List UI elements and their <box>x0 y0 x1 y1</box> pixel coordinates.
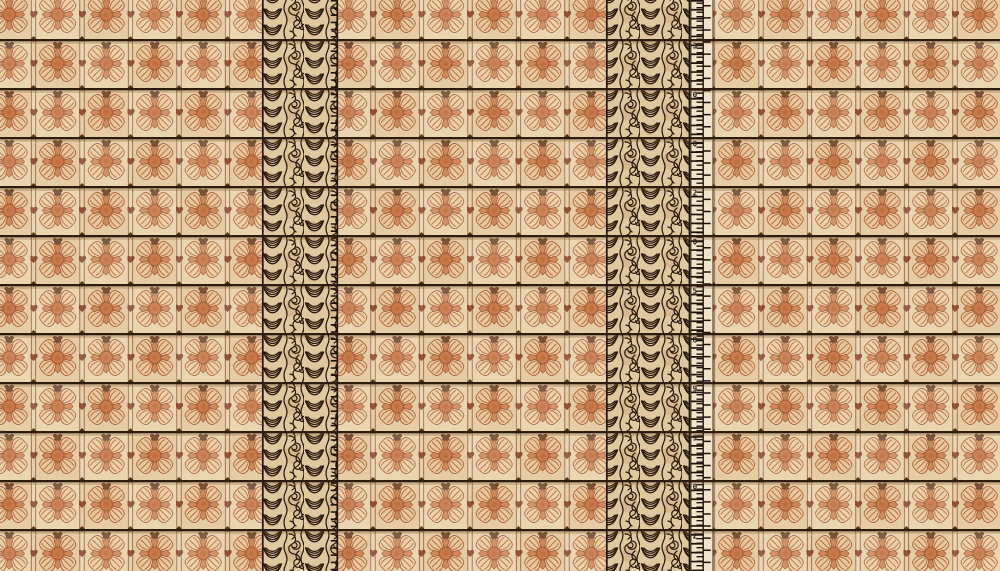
grain-overlay <box>0 0 1000 571</box>
tile-pattern-artwork: 3 0 0 2 0 5 8 9 9 0 2 <box>0 0 1000 571</box>
stock-pattern-image: 3 0 0 2 0 5 8 9 9 0 2 Adobe Stock | #143… <box>0 0 1000 571</box>
